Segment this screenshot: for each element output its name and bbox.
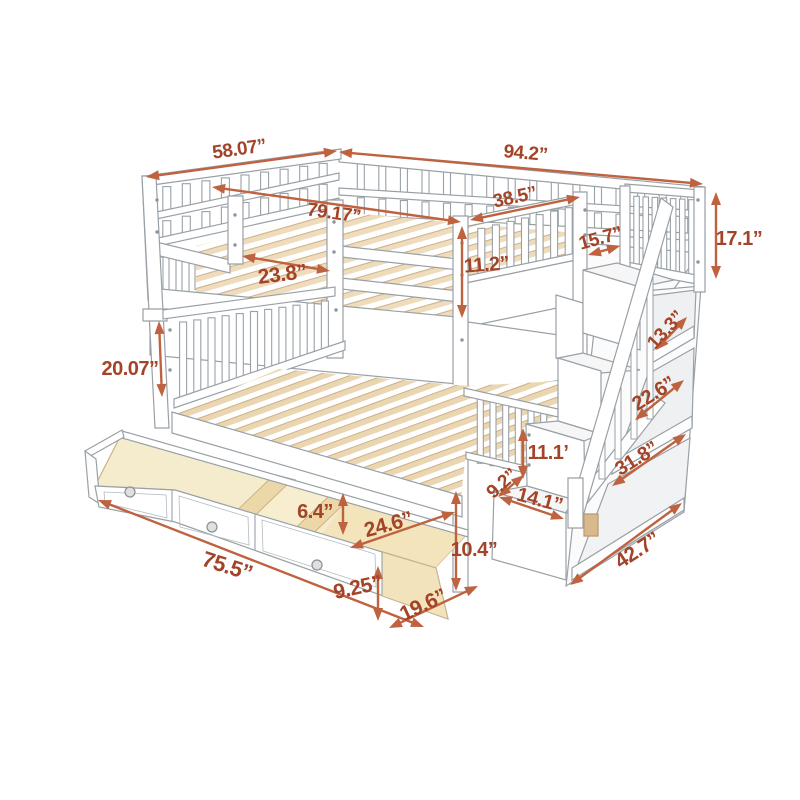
svg-text:17.1”: 17.1” [716, 228, 762, 250]
svg-text:11.2”: 11.2” [463, 252, 510, 277]
svg-text:10.4”: 10.4” [451, 539, 497, 561]
svg-text:6.4”: 6.4” [297, 501, 333, 523]
svg-text:20.07”: 20.07” [101, 358, 158, 380]
svg-text:94.2”: 94.2” [503, 141, 549, 166]
svg-text:11.1’: 11.1’ [528, 442, 569, 464]
